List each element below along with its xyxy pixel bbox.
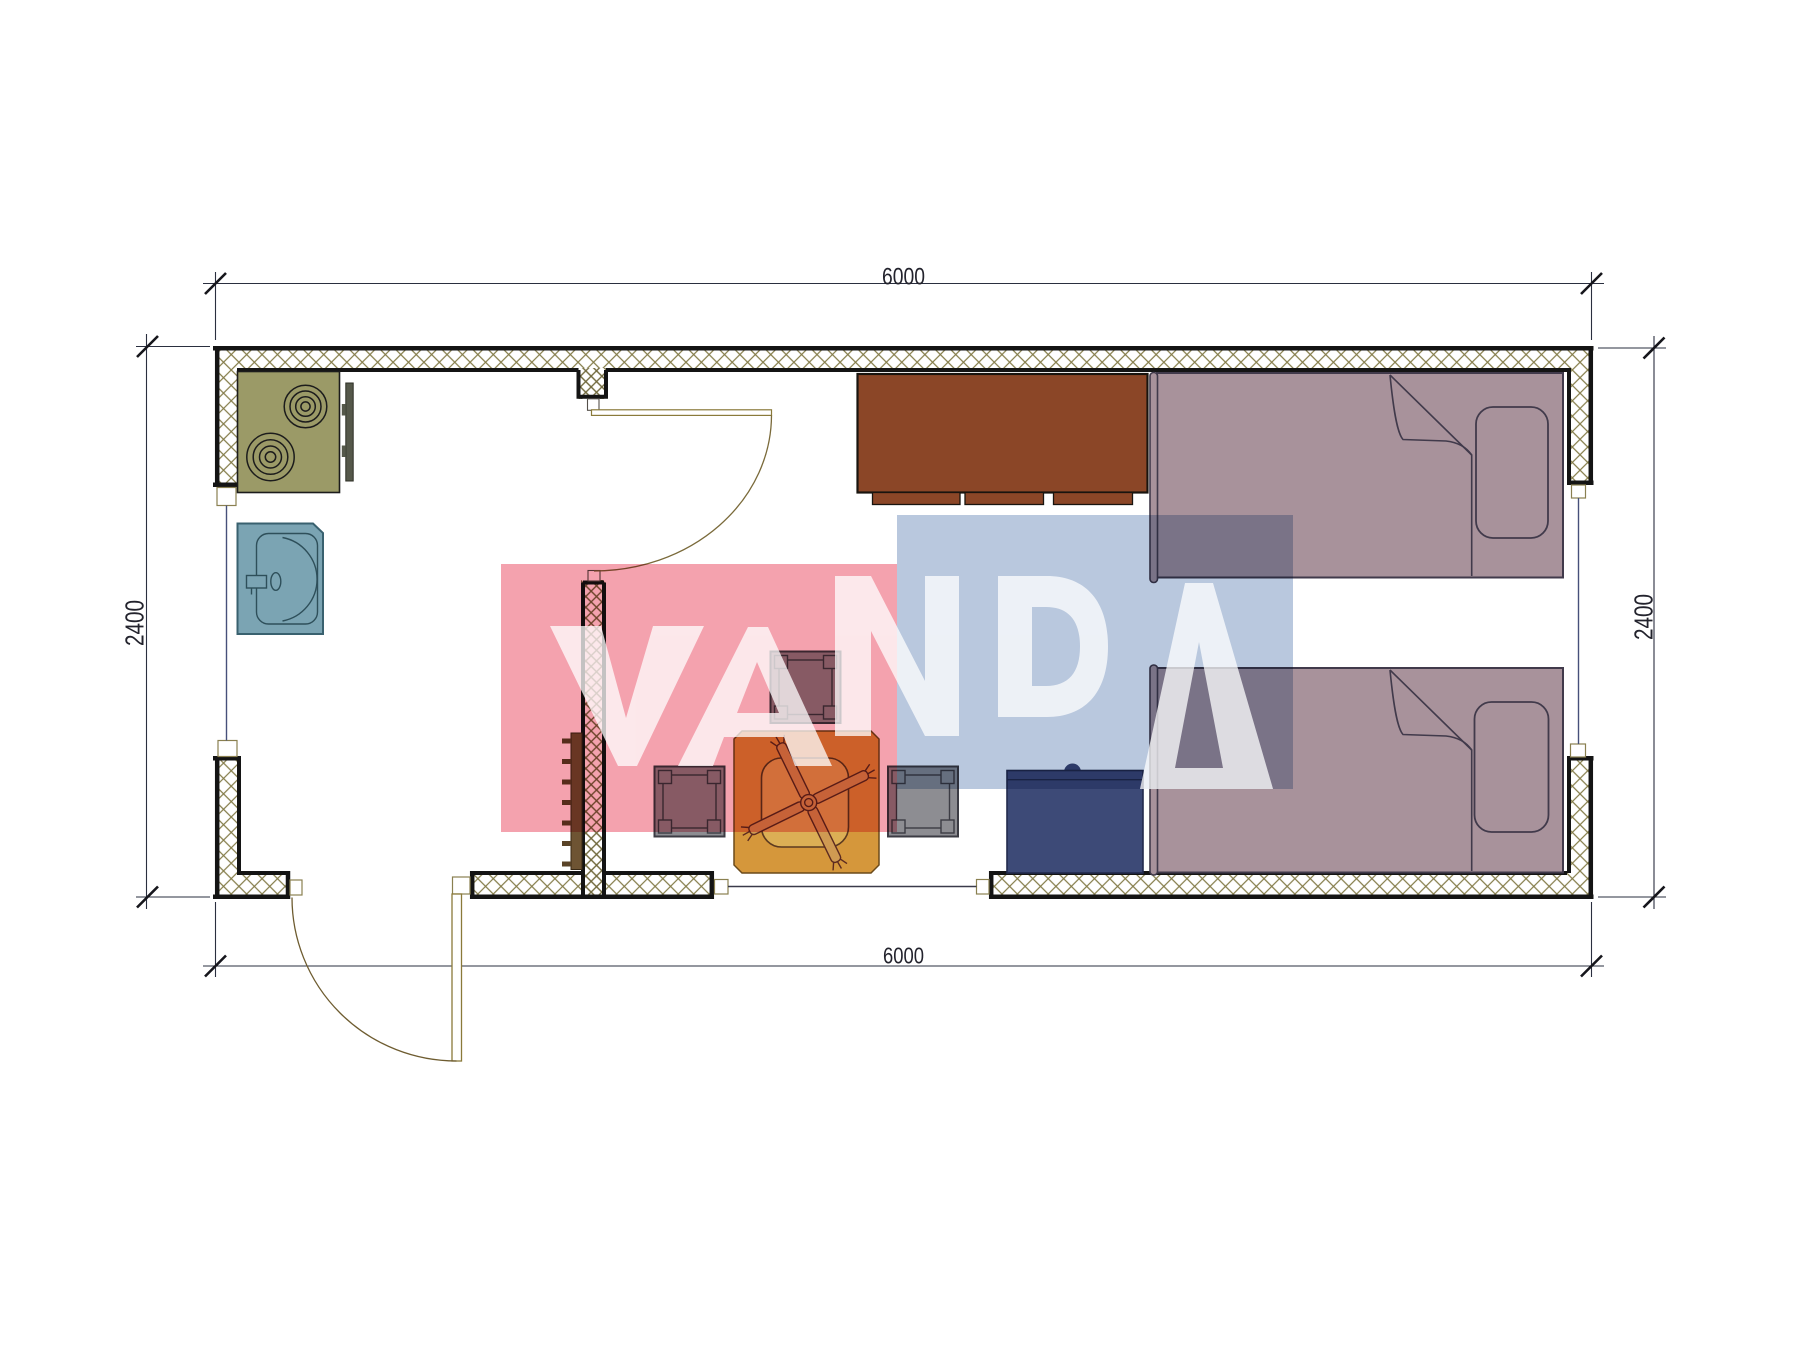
svg-text:2400: 2400	[1629, 594, 1659, 640]
svg-text:2400: 2400	[120, 600, 150, 646]
svg-text:6000: 6000	[883, 943, 924, 969]
svg-text:6000: 6000	[882, 264, 925, 291]
